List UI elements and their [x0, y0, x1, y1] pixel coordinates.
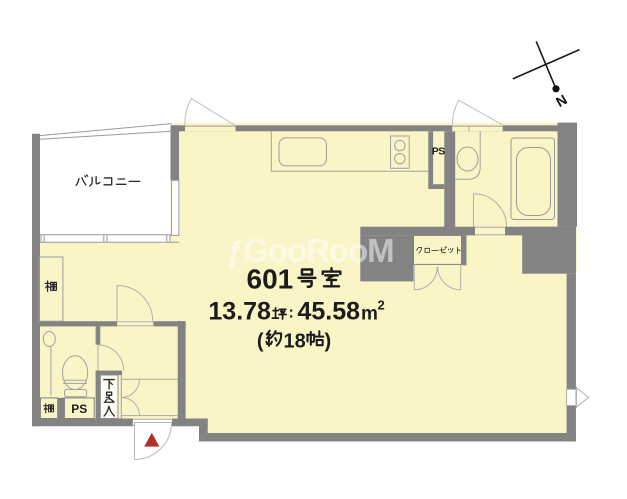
svg-text:2: 2	[378, 298, 385, 313]
svg-text:(: (	[257, 331, 264, 353]
svg-text:): )	[325, 331, 332, 353]
svg-text:ƒ: ƒ	[226, 236, 243, 269]
svg-text:601: 601	[247, 264, 294, 295]
svg-text:18: 18	[284, 331, 306, 353]
svg-text::: :	[289, 305, 294, 322]
svg-text:45.58: 45.58	[298, 298, 361, 326]
svg-text:m: m	[361, 304, 378, 325]
svg-text:PS: PS	[432, 146, 446, 158]
svg-text:13.78: 13.78	[208, 298, 271, 326]
svg-text:PS: PS	[71, 402, 87, 416]
